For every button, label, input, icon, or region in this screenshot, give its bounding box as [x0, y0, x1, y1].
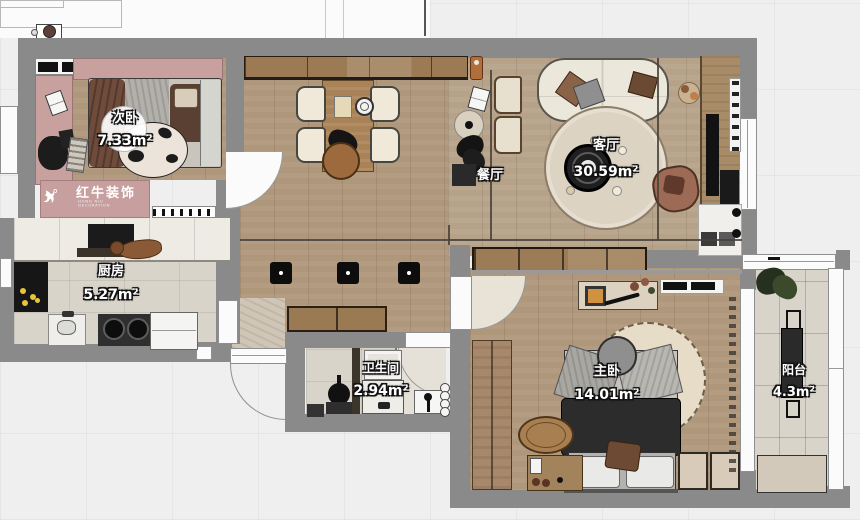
- panda-rug-patch: [128, 150, 144, 162]
- ceiling-light-dot: [346, 271, 350, 275]
- room-label-bathroom: 卫生间: [348, 362, 414, 375]
- room-label-dining: 餐厅: [466, 169, 514, 183]
- master-wardrobe: [472, 340, 512, 490]
- dining-kettle-inner: [360, 102, 369, 111]
- wall-balcony-corner-top: [836, 250, 850, 270]
- nightstand-card: [530, 458, 542, 474]
- kitchen-stove-column: [14, 262, 48, 312]
- dining-chair: [370, 86, 400, 122]
- door-entry-line: [232, 355, 285, 356]
- stove-burner: [22, 300, 28, 306]
- toilet-tank: [326, 402, 352, 414]
- dining-tray: [334, 96, 352, 118]
- drying-rack-top: [786, 310, 801, 330]
- door-kitchen: [218, 300, 238, 344]
- nightstand-item: [557, 477, 563, 483]
- brand-bull-icon: [41, 188, 59, 210]
- dresser-plant: [630, 282, 639, 291]
- armchair-pillow: [663, 174, 686, 195]
- room-label-second-bedroom: 次卧: [95, 112, 155, 126]
- stove-burner: [20, 288, 26, 294]
- floor-plan-canvas: 红牛装饰 HONG NIU DECORATION: [0, 0, 860, 520]
- window-master-bedroom-east: [740, 288, 755, 472]
- tv-cabinet-knob: [732, 208, 741, 217]
- door-balcony-sliding-line: [744, 261, 834, 262]
- room-area-second-bedroom: 7.33m²: [92, 134, 158, 149]
- room-area-balcony: 4.3m²: [764, 386, 824, 400]
- brand-subtitle: HONG NIU DECORATION: [78, 200, 134, 208]
- room-area-kitchen: 5.27m²: [80, 288, 142, 303]
- master-bed-pillow-brown: [604, 440, 642, 472]
- room-label-master-bedroom: 主卧: [582, 365, 632, 379]
- ceiling-beam: [448, 225, 450, 245]
- radiator-grille: [38, 62, 58, 72]
- door-entry-swing-arc: [230, 364, 286, 420]
- room-area-bathroom: 2.94m²: [346, 384, 416, 399]
- shoe-cabinet: [287, 306, 387, 332]
- stove-burner: [35, 298, 40, 303]
- wall-bedroom-west: [450, 329, 470, 500]
- room-label-kitchen: 厨房: [84, 265, 138, 279]
- master-closet-lip: [472, 270, 742, 274]
- neighbor-wall-line: [325, 0, 326, 38]
- room-area-living: 30.59m²: [568, 165, 644, 180]
- ceiling-beam: [490, 70, 492, 240]
- balcony-cabinet: [757, 455, 827, 493]
- window-bathroom-door-frame: [405, 332, 451, 348]
- brand-banner: 红牛装饰 HONG NIU DECORATION: [40, 180, 150, 218]
- dresser-frame-box: [585, 286, 606, 306]
- wall-bedroom-west-stub: [450, 245, 470, 277]
- wall-bedroom-dining: [226, 58, 244, 152]
- dining-chair: [296, 86, 326, 122]
- ceiling-light-dot: [407, 271, 411, 275]
- tv-cabinet-knob: [732, 229, 741, 238]
- kitchen-window-grille: [152, 206, 216, 218]
- tv-screen: [706, 114, 719, 196]
- dining-chair: [370, 127, 400, 163]
- master-closet-row: [472, 247, 647, 272]
- window-kitchen-south: [196, 346, 212, 360]
- kitchen-faucet: [62, 311, 74, 317]
- master-tv-bar: [663, 282, 687, 290]
- exhaust-vent-fan: [43, 25, 56, 38]
- neighbor-wall-line: [424, 0, 426, 36]
- window-kitchen-west: [0, 258, 12, 288]
- window-living-east: [739, 118, 757, 210]
- neighbor-outline: [0, 0, 64, 8]
- washer-drum: [127, 318, 149, 340]
- bathroom-partition: [352, 348, 360, 414]
- dining-top-cabinets: [244, 56, 468, 80]
- drying-rack-bottom: [786, 400, 800, 418]
- side-table-items: [690, 92, 698, 100]
- side-table-items: [681, 85, 689, 93]
- dresser-plant: [648, 287, 655, 294]
- ceiling-beam: [657, 58, 659, 240]
- toilet-stem: [337, 375, 341, 385]
- door-entry: [230, 348, 287, 364]
- wall-left-bedroom: [18, 58, 35, 218]
- ceiling-light-dot: [279, 271, 283, 275]
- master-cabinet: [678, 452, 708, 490]
- shower-head-figure: [427, 400, 430, 412]
- second-bedroom-headboard: [73, 58, 223, 80]
- tv-shelf-books: [729, 78, 741, 152]
- exhaust-vent-knob: [31, 29, 38, 36]
- door-master-bedroom-frame: [450, 276, 472, 330]
- master-curtain: [729, 296, 736, 472]
- room-label-living: 客厅: [580, 139, 632, 153]
- living-round-stand-dot: [465, 121, 473, 129]
- window-living-east-line: [747, 120, 748, 208]
- vanity-faucet: [378, 402, 390, 409]
- window-balcony-east-line: [828, 368, 844, 369]
- bed-side-strip: [200, 80, 220, 166]
- nightstand-item: [532, 478, 540, 486]
- room-area-master-bedroom: 14.01m²: [570, 388, 644, 403]
- brand-name: 红牛装饰: [76, 187, 136, 200]
- master-tv-bar: [691, 282, 715, 290]
- window-balcony-east: [828, 268, 844, 490]
- panda-rug-patch: [166, 154, 178, 163]
- window-bedroom-west: [0, 106, 18, 174]
- bedside-stool-rim: [526, 422, 566, 448]
- bath-mat: [307, 404, 324, 417]
- cutting-board-hole: [474, 60, 479, 65]
- washer-drum: [103, 318, 125, 340]
- room-label-balcony: 阳台: [768, 364, 820, 377]
- kitchen-sink-basin: [57, 320, 76, 335]
- door-balcony-sliding-handle: [768, 257, 780, 260]
- wall-bedroom-balcony-bottom: [740, 470, 756, 492]
- kitchen-fridge-line: [152, 330, 196, 331]
- nightstand-item: [542, 479, 550, 487]
- dresser-plant: [641, 278, 649, 286]
- tv-equipment: [720, 170, 739, 204]
- bed-pillow: [174, 88, 198, 108]
- wall-bathroom-top: [285, 332, 410, 348]
- kitchen-fridge: [150, 312, 198, 350]
- dining-round-table: [322, 142, 360, 180]
- accent-chair: [494, 116, 522, 154]
- wall-top: [18, 38, 757, 58]
- door-balcony-sliding: [742, 254, 836, 270]
- neighbor-wall-line: [343, 0, 344, 38]
- kitchen-teddy-head: [110, 241, 124, 255]
- towel-roll: [440, 407, 450, 417]
- rug-cup: [612, 186, 622, 196]
- accent-chair: [494, 76, 522, 114]
